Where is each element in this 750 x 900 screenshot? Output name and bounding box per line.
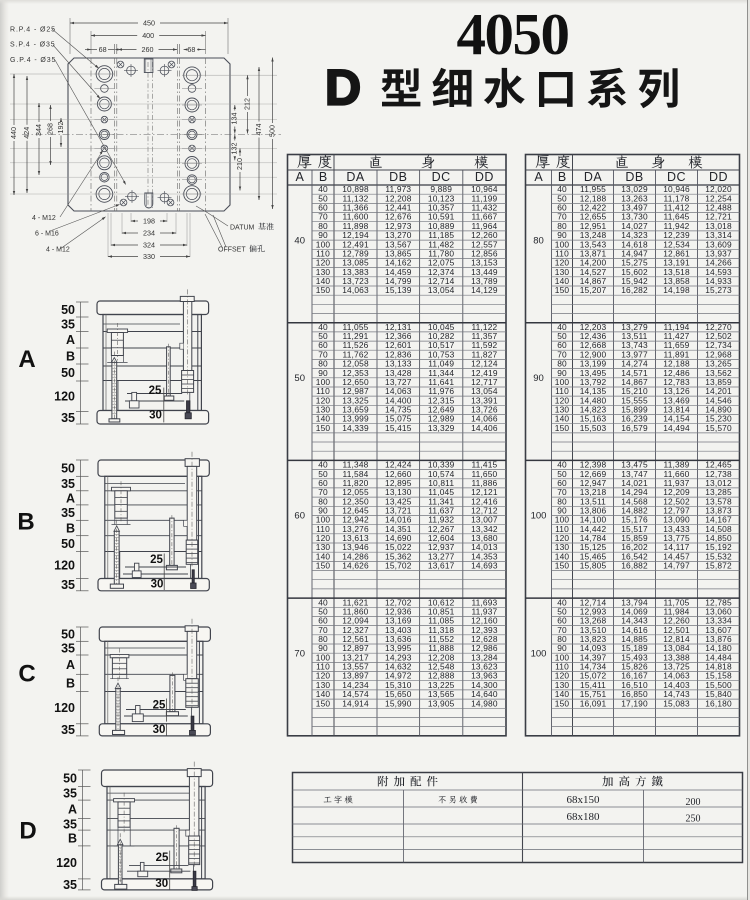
svg-text:17,190: 17,190 <box>621 698 648 708</box>
svg-text:15,273: 15,273 <box>705 285 732 295</box>
svg-text:DC: DC <box>431 170 450 184</box>
svg-text:30: 30 <box>153 724 166 736</box>
svg-text:474: 474 <box>254 124 263 136</box>
svg-text:14,693: 14,693 <box>471 561 498 571</box>
svg-text:B: B <box>558 170 566 184</box>
svg-text:50: 50 <box>63 772 77 786</box>
svg-text:120: 120 <box>56 856 77 870</box>
svg-text:4 - M12: 4 - M12 <box>46 247 70 254</box>
svg-text:50: 50 <box>294 373 305 384</box>
svg-text:B: B <box>17 508 34 535</box>
svg-text:15,805: 15,805 <box>580 561 607 571</box>
svg-text:14,129: 14,129 <box>471 285 498 295</box>
svg-text:150: 150 <box>555 285 570 295</box>
svg-text:15,570: 15,570 <box>705 423 732 433</box>
svg-text:DA: DA <box>346 170 365 184</box>
svg-text:DC: DC <box>667 170 686 184</box>
svg-text:35: 35 <box>61 476 75 490</box>
svg-text:DB: DB <box>625 170 643 184</box>
svg-text:D: D <box>19 818 36 845</box>
svg-text:B: B <box>66 521 75 535</box>
svg-text:330: 330 <box>143 252 155 261</box>
svg-text:C: C <box>18 660 35 687</box>
svg-text:68x150: 68x150 <box>567 794 601 806</box>
svg-text:25: 25 <box>153 699 166 711</box>
svg-text:90: 90 <box>533 373 544 384</box>
svg-text:35: 35 <box>63 878 77 892</box>
svg-text:134: 134 <box>230 113 239 125</box>
svg-text:150: 150 <box>315 561 330 571</box>
svg-text:132: 132 <box>230 143 239 155</box>
svg-text:150: 150 <box>315 698 330 708</box>
svg-text:30: 30 <box>155 878 168 890</box>
svg-text:DB: DB <box>389 170 407 184</box>
svg-text:30: 30 <box>151 578 164 590</box>
svg-text:15,702: 15,702 <box>385 561 412 571</box>
svg-text:G.P.4 - Ø35: G.P.4 - Ø35 <box>10 57 56 64</box>
svg-text:15,872: 15,872 <box>705 561 732 571</box>
svg-text:35: 35 <box>61 723 75 737</box>
svg-text:212: 212 <box>242 98 251 110</box>
svg-text:14,626: 14,626 <box>342 561 369 571</box>
svg-text:13,329: 13,329 <box>427 423 454 433</box>
svg-text:16,579: 16,579 <box>621 423 648 433</box>
svg-text:198: 198 <box>143 217 155 226</box>
svg-text:500: 500 <box>267 125 276 137</box>
svg-text:14,406: 14,406 <box>471 423 498 433</box>
svg-text:35: 35 <box>61 506 75 520</box>
svg-text:A: A <box>295 170 304 184</box>
svg-text:A: A <box>18 346 35 373</box>
svg-text:60: 60 <box>294 511 305 522</box>
svg-text:68: 68 <box>99 45 107 54</box>
svg-text:A: A <box>68 803 77 817</box>
svg-text:14,797: 14,797 <box>663 561 690 571</box>
svg-text:100: 100 <box>531 511 547 522</box>
svg-text:15,139: 15,139 <box>385 285 412 295</box>
svg-text:DD: DD <box>709 170 728 184</box>
svg-text:120: 120 <box>54 701 75 715</box>
svg-text:14,914: 14,914 <box>342 698 369 708</box>
svg-text:A: A <box>534 170 543 184</box>
svg-text:B: B <box>68 832 77 846</box>
svg-text:35: 35 <box>61 641 75 655</box>
svg-text:150: 150 <box>555 423 570 433</box>
svg-text:14,198: 14,198 <box>663 285 690 295</box>
svg-text:400: 400 <box>142 31 154 40</box>
svg-text:15,415: 15,415 <box>385 423 412 433</box>
svg-text:13,905: 13,905 <box>427 698 454 708</box>
svg-text:68x180: 68x180 <box>567 811 601 823</box>
svg-text:25: 25 <box>149 385 162 397</box>
svg-text:B: B <box>66 349 75 363</box>
svg-text:OFFSET: OFFSET <box>218 247 246 254</box>
svg-text:A: A <box>66 658 75 672</box>
svg-text:150: 150 <box>315 423 330 433</box>
svg-text:B: B <box>66 676 75 690</box>
svg-text:14,339: 14,339 <box>342 423 369 433</box>
svg-text:150: 150 <box>555 698 570 708</box>
svg-text:16,091: 16,091 <box>580 698 607 708</box>
svg-text:344: 344 <box>34 124 43 136</box>
svg-text:250: 250 <box>686 813 701 824</box>
svg-text:15,990: 15,990 <box>385 698 412 708</box>
svg-text:260: 260 <box>142 45 154 54</box>
svg-text:S.P.4 - Ø35: S.P.4 - Ø35 <box>10 42 56 49</box>
svg-text:200: 200 <box>686 797 701 808</box>
svg-text:16,180: 16,180 <box>705 698 732 708</box>
svg-text:35: 35 <box>63 787 77 801</box>
svg-text:DA: DA <box>584 170 603 184</box>
svg-text:15,207: 15,207 <box>580 285 607 295</box>
svg-text:DATUM: DATUM <box>230 225 255 232</box>
svg-text:16,882: 16,882 <box>621 561 648 571</box>
svg-text:25: 25 <box>156 852 169 864</box>
svg-text:15,083: 15,083 <box>663 698 690 708</box>
svg-text:210: 210 <box>235 158 244 170</box>
svg-text:80: 80 <box>533 235 544 246</box>
svg-text:35: 35 <box>63 818 77 832</box>
svg-text:13,054: 13,054 <box>427 285 454 295</box>
svg-text:50: 50 <box>61 461 75 475</box>
svg-text:R.P.4 - Ø25: R.P.4 - Ø25 <box>10 27 56 34</box>
svg-text:35: 35 <box>61 411 75 425</box>
svg-text:324: 324 <box>143 241 155 250</box>
svg-text:14,980: 14,980 <box>471 698 498 708</box>
svg-text:120: 120 <box>54 558 75 572</box>
svg-text:35: 35 <box>61 318 75 332</box>
svg-text:120: 120 <box>54 390 75 404</box>
svg-text:35: 35 <box>61 578 75 592</box>
svg-text:234: 234 <box>143 229 155 238</box>
svg-text:70: 70 <box>294 648 305 659</box>
svg-text:100: 100 <box>531 648 547 659</box>
svg-text:DD: DD <box>474 170 493 184</box>
svg-text:150: 150 <box>555 561 570 571</box>
svg-text:B: B <box>318 170 326 184</box>
svg-text:192: 192 <box>56 122 65 134</box>
svg-text:25: 25 <box>150 554 163 566</box>
svg-text:450: 450 <box>143 19 155 28</box>
svg-text:14,494: 14,494 <box>663 423 690 433</box>
svg-text:A: A <box>66 491 75 505</box>
svg-text:30: 30 <box>149 410 162 422</box>
svg-text:6 - M16: 6 - M16 <box>35 231 59 238</box>
svg-text:424: 424 <box>22 127 31 139</box>
svg-text:68: 68 <box>187 45 195 54</box>
svg-text:14,063: 14,063 <box>342 285 369 295</box>
svg-text:50: 50 <box>61 537 75 551</box>
svg-text:268: 268 <box>45 123 54 135</box>
svg-text:13,617: 13,617 <box>427 561 454 571</box>
svg-text:440: 440 <box>9 127 18 139</box>
svg-text:15,503: 15,503 <box>580 423 607 433</box>
svg-text:16,282: 16,282 <box>621 285 648 295</box>
svg-text:50: 50 <box>61 366 75 380</box>
svg-text:A: A <box>66 333 75 347</box>
svg-text:4 - M12: 4 - M12 <box>32 215 56 222</box>
svg-text:50: 50 <box>61 627 75 641</box>
svg-text:50: 50 <box>61 303 75 317</box>
svg-text:40: 40 <box>294 235 305 246</box>
svg-text:150: 150 <box>315 285 330 295</box>
